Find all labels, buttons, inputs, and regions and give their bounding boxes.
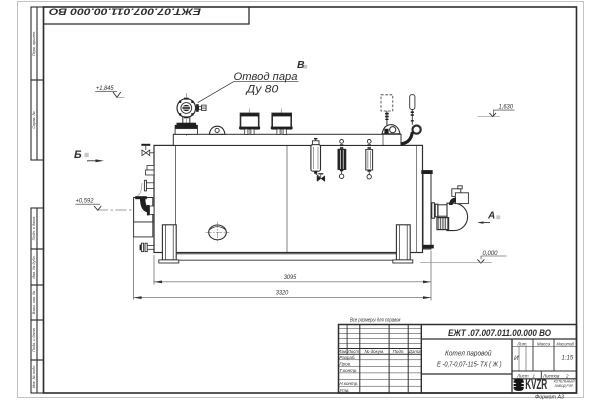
svg-text:И: И: [514, 355, 519, 362]
svg-text:Т.контр.: Т.контр.: [339, 368, 357, 373]
svg-text:Подп. и дата: Подп. и дата: [32, 328, 36, 352]
svg-text:Инв. № дубл.: Инв. № дубл.: [32, 255, 36, 278]
svg-text:3320: 3320: [276, 290, 289, 297]
svg-text:Формат А3: Формат А3: [535, 394, 565, 400]
svg-text:Подп.: Подп.: [393, 349, 405, 354]
svg-text:Перв. примен.: Перв. примен.: [32, 31, 36, 56]
svg-text:ЕЖТ.07.007.011.00.000 ВО: ЕЖТ.07.007.011.00.000 ВО: [48, 6, 201, 17]
svg-text:Пров.: Пров.: [339, 361, 351, 366]
svg-text:Дата: Дата: [408, 349, 421, 354]
svg-text:Разраб.: Разраб.: [339, 355, 355, 360]
svg-text:Утв.: Утв.: [339, 388, 349, 393]
svg-text:КОТЕЛЬНЫЙ: КОТЕЛЬНЫЙ: [554, 379, 575, 383]
svg-text:+0,592: +0,592: [76, 197, 95, 204]
svg-text:ЗАВОД РЭР: ЗАВОД РЭР: [555, 384, 575, 388]
svg-text:2: 2: [565, 373, 569, 378]
svg-text:Лит.: Лит.: [516, 341, 528, 346]
svg-text:Е -0,7-0,07-115- ТХ ( Ж ): Е -0,7-0,07-115- ТХ ( Ж ): [437, 361, 502, 368]
svg-text:Справ. №: Справ. №: [32, 111, 36, 128]
svg-text:Ду 80: Ду 80: [246, 83, 279, 95]
svg-text:ЕЖТ .07.007.011.00.000 ВО: ЕЖТ .07.007.011.00.000 ВО: [448, 328, 552, 338]
svg-text:Масштаб: Масштаб: [556, 341, 574, 346]
svg-text:Все размеры для справок: Все размеры для справок: [350, 317, 401, 323]
svg-text:№ докум.: № докум.: [364, 349, 384, 354]
svg-text:1:15: 1:15: [562, 356, 574, 362]
svg-text:Изм.: Изм.: [338, 349, 348, 354]
svg-text:Лист: Лист: [347, 349, 360, 354]
svg-text:0,000: 0,000: [483, 250, 499, 257]
svg-text:Взам. инв. №: Взам. инв. №: [32, 291, 36, 314]
svg-text:Подп. и дата: Подп. и дата: [32, 217, 36, 241]
svg-text:Б: Б: [74, 149, 82, 161]
svg-text:Отвод пара: Отвод пара: [234, 71, 298, 83]
svg-text:Котел паровой: Котел паровой: [445, 348, 492, 357]
svg-text:Н.контр.: Н.контр.: [339, 381, 358, 386]
svg-text:Инв. № подл.: Инв. № подл.: [32, 365, 36, 389]
svg-text:KVZR: KVZR: [525, 375, 547, 392]
svg-text:Масса: Масса: [537, 341, 551, 346]
svg-text:3095: 3095: [284, 274, 297, 281]
svg-text:1,630: 1,630: [499, 104, 514, 111]
svg-text:А: А: [487, 211, 495, 222]
svg-text:+1,845: +1,845: [96, 85, 114, 92]
